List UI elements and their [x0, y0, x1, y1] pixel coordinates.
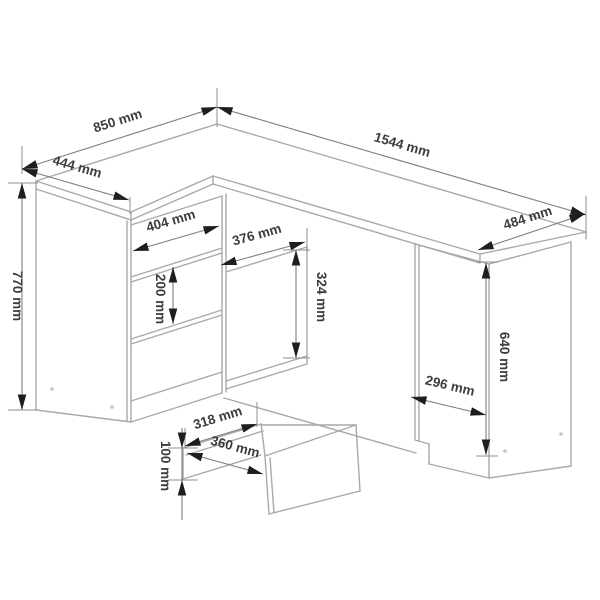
- cam-fitting-dot: [50, 387, 54, 391]
- dim-label-640mm: 640 mm: [497, 332, 512, 382]
- corner-desk-dimension-diagram: 850 mm 1544 mm 444 mm 770 mm 404 mm 376 …: [0, 0, 600, 600]
- cam-fitting-dot: [110, 405, 114, 409]
- cam-fitting-dot: [503, 449, 507, 453]
- cam-fitting-dot: [559, 432, 563, 436]
- diagram-canvas: 850 mm 1544 mm 444 mm 770 mm 404 mm 376 …: [0, 0, 600, 600]
- dim-label-324mm: 324 mm: [314, 272, 329, 322]
- dim-label-100mm: 100 mm: [158, 441, 173, 491]
- dim-label-770mm: 770 mm: [10, 271, 25, 321]
- diagram-background: [0, 0, 600, 600]
- dim-label-200mm: 200 mm: [153, 274, 168, 324]
